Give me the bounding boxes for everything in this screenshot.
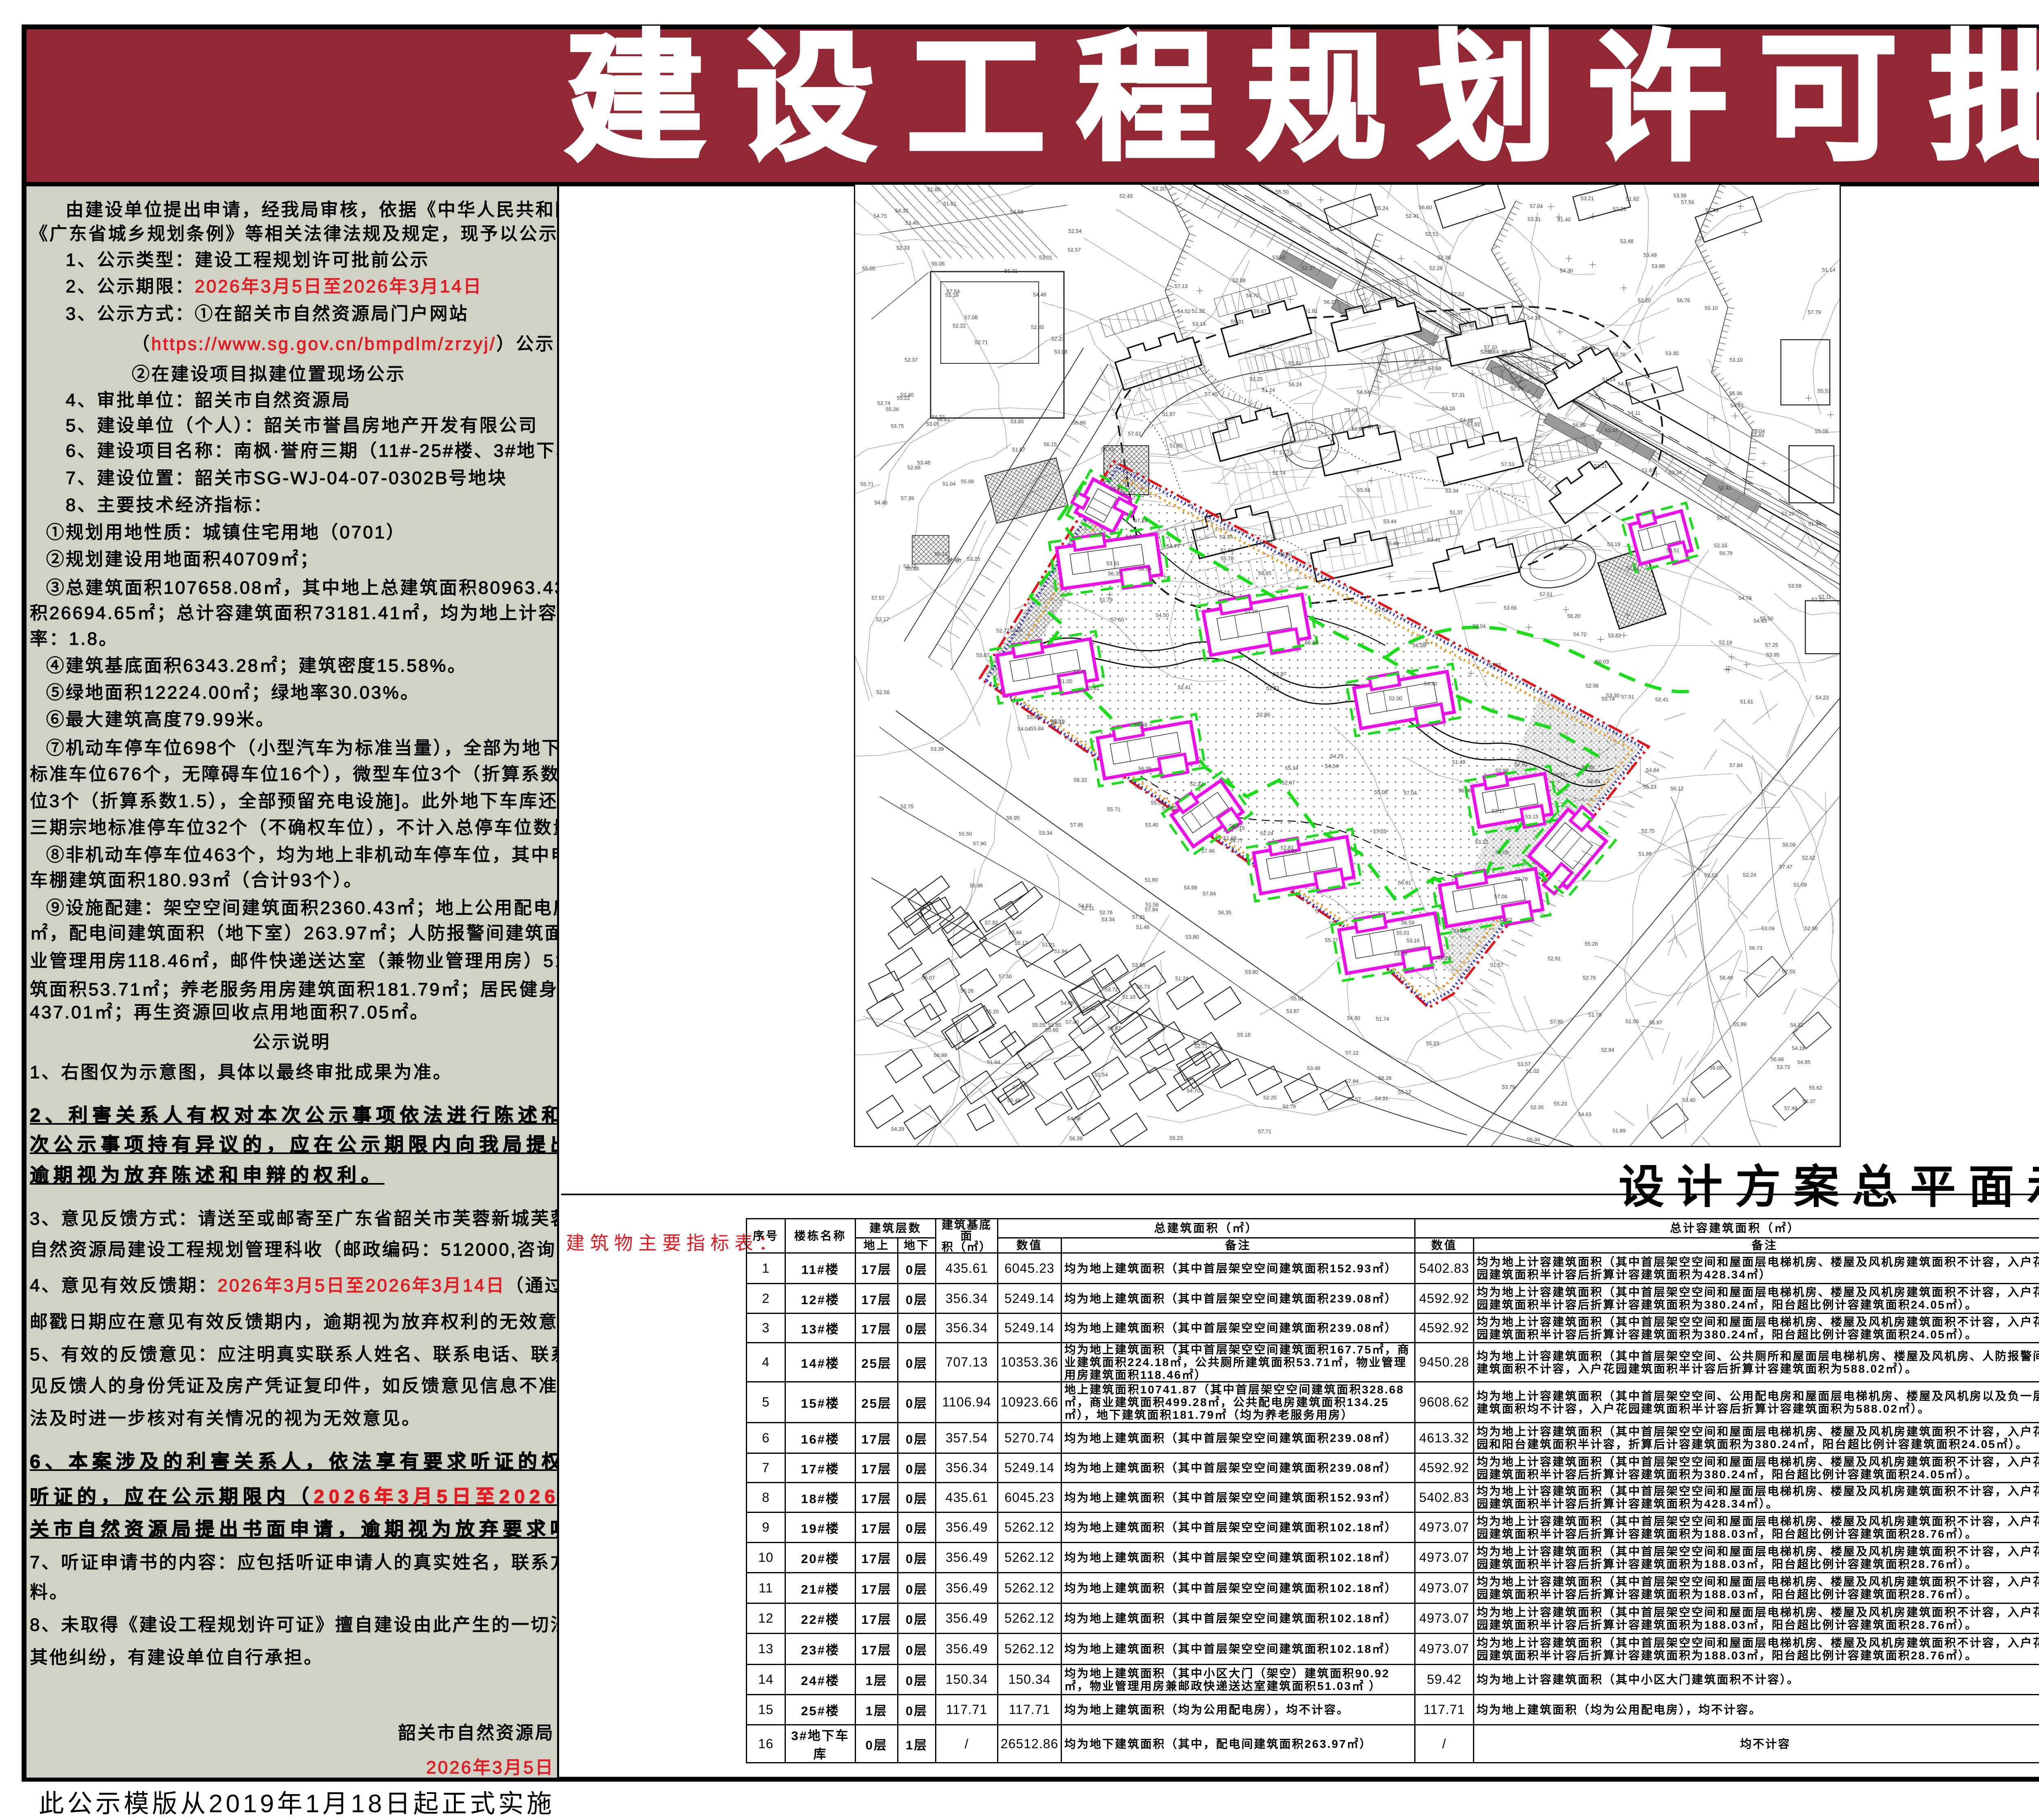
- svg-text:57.90: 57.90: [973, 840, 986, 847]
- svg-text:55.01: 55.01: [1396, 930, 1410, 936]
- svg-text:53.79: 53.79: [1502, 1084, 1515, 1090]
- svg-text:57.04: 57.04: [1530, 203, 1543, 209]
- svg-text:51.10: 51.10: [1122, 994, 1136, 1000]
- svg-text:55.50: 55.50: [1760, 615, 1774, 621]
- svg-text:54.04: 54.04: [1017, 726, 1031, 732]
- svg-text:54.29: 54.29: [891, 1126, 905, 1132]
- svg-text:55.68: 55.68: [906, 566, 919, 572]
- svg-text:52.41: 52.41: [1406, 213, 1419, 219]
- svg-text:56.16: 56.16: [934, 551, 948, 557]
- svg-text:57.84: 57.84: [1345, 1078, 1359, 1084]
- svg-text:51.05: 51.05: [1059, 678, 1073, 684]
- svg-text:52.88: 52.88: [1232, 277, 1246, 283]
- svg-text:53.15: 53.15: [1525, 814, 1539, 820]
- svg-text:53.86: 53.86: [1581, 765, 1595, 771]
- svg-text:57.39: 57.39: [901, 495, 914, 501]
- svg-text:53.40: 53.40: [905, 220, 919, 226]
- svg-text:53.18: 53.18: [1245, 608, 1258, 615]
- svg-text:52.41: 52.41: [1178, 684, 1191, 690]
- svg-text:53.01: 53.01: [1039, 254, 1053, 261]
- svg-text:53.87: 53.87: [1286, 1008, 1300, 1014]
- svg-text:51.80: 51.80: [1145, 877, 1158, 883]
- svg-text:57.57: 57.57: [871, 595, 885, 601]
- svg-text:57.02: 57.02: [1451, 291, 1464, 297]
- svg-text:55.10: 55.10: [1705, 305, 1718, 311]
- svg-text:57.24: 57.24: [1134, 517, 1148, 524]
- svg-text:57.04: 57.04: [1404, 790, 1417, 796]
- svg-text:52.54: 52.54: [1095, 1072, 1108, 1078]
- svg-text:57.61: 57.61: [1128, 431, 1141, 437]
- svg-text:57.84: 57.84: [1203, 891, 1216, 897]
- svg-text:57.92: 57.92: [1467, 421, 1480, 427]
- svg-text:54.77: 54.77: [1167, 543, 1180, 549]
- svg-text:52.40: 52.40: [900, 392, 914, 398]
- svg-text:54.84: 54.84: [1646, 767, 1659, 773]
- svg-text:56.73: 56.73: [1137, 984, 1150, 990]
- svg-text:51.24: 51.24: [1175, 975, 1189, 982]
- svg-text:56.86: 56.86: [1279, 551, 1292, 557]
- svg-text:55.12: 55.12: [1259, 344, 1273, 350]
- svg-text:52.21: 52.21: [1626, 565, 1640, 571]
- svg-text:53.34: 53.34: [1101, 916, 1115, 922]
- svg-text:53.95: 53.95: [1766, 652, 1780, 658]
- svg-text:56.39: 56.39: [1138, 765, 1152, 772]
- svg-text:53.82: 53.82: [1608, 632, 1621, 639]
- svg-text:53.73: 53.73: [1777, 1064, 1790, 1070]
- svg-text:55.23: 55.23: [1643, 784, 1656, 790]
- svg-text:55.23: 55.23: [1554, 1101, 1567, 1107]
- svg-text:57.49: 57.49: [1784, 1105, 1798, 1111]
- svg-text:56.49: 56.49: [1720, 975, 1733, 981]
- svg-text:54.98: 54.98: [1461, 322, 1475, 328]
- svg-text:51.79: 51.79: [1099, 597, 1113, 603]
- svg-text:55.67: 55.67: [1717, 515, 1730, 521]
- svg-text:55.62: 55.62: [1809, 1085, 1822, 1091]
- svg-text:57.17: 57.17: [1013, 1084, 1026, 1090]
- svg-text:52.91: 52.91: [1587, 778, 1601, 784]
- svg-text:53.14: 53.14: [1192, 321, 1206, 327]
- svg-text:53.80: 53.80: [1185, 934, 1199, 940]
- svg-text:55.50: 55.50: [1276, 189, 1289, 195]
- svg-text:52.45: 52.45: [1031, 324, 1044, 330]
- svg-text:53.85: 53.85: [1011, 418, 1024, 425]
- svg-text:51.88: 51.88: [1639, 851, 1652, 857]
- svg-text:54.58: 54.58: [1010, 209, 1024, 215]
- svg-text:53.40: 53.40: [1682, 1097, 1696, 1103]
- svg-text:53.70: 53.70: [1612, 352, 1626, 358]
- svg-text:55.78: 55.78: [1221, 555, 1234, 562]
- svg-text:56.09: 56.09: [1782, 842, 1796, 848]
- svg-text:55.18: 55.18: [1237, 1032, 1251, 1038]
- svg-text:56.07: 56.07: [922, 975, 935, 981]
- svg-text:57.81: 57.81: [1280, 845, 1294, 851]
- svg-text:53.42: 53.42: [1605, 427, 1618, 433]
- svg-text:57.14: 57.14: [1376, 607, 1389, 613]
- svg-text:55.94: 55.94: [1527, 1137, 1540, 1143]
- svg-text:56.37: 56.37: [1802, 1098, 1816, 1104]
- svg-text:56.99: 56.99: [934, 1052, 947, 1058]
- svg-text:55.77: 55.77: [1325, 937, 1338, 943]
- svg-text:54.38: 54.38: [1527, 315, 1541, 321]
- svg-text:56.35: 56.35: [1108, 571, 1121, 577]
- svg-text:55.05: 55.05: [862, 265, 876, 272]
- svg-text:51.56: 51.56: [1625, 1018, 1639, 1024]
- svg-text:57.13: 57.13: [1174, 283, 1188, 289]
- svg-text:56.24: 56.24: [1289, 381, 1302, 387]
- svg-text:56.65: 56.65: [1258, 570, 1272, 576]
- svg-text:57.12: 57.12: [1345, 1050, 1359, 1056]
- svg-text:53.80: 53.80: [1245, 969, 1258, 975]
- svg-text:57.31: 57.31: [1452, 392, 1465, 398]
- svg-text:54.46: 54.46: [874, 500, 888, 506]
- svg-text:55.05: 55.05: [1032, 1022, 1046, 1028]
- svg-text:51.49: 51.49: [1452, 759, 1466, 765]
- svg-text:52.71: 52.71: [975, 339, 988, 345]
- svg-text:56.79: 56.79: [1719, 550, 1733, 556]
- svg-text:51.11: 51.11: [1594, 463, 1607, 469]
- svg-text:56.58: 56.58: [1134, 722, 1148, 728]
- svg-text:52.71: 52.71: [1194, 1043, 1208, 1049]
- svg-text:54.85: 54.85: [1797, 1059, 1811, 1065]
- svg-text:51.91: 51.91: [1305, 308, 1318, 314]
- svg-text:56.12: 56.12: [1670, 785, 1684, 792]
- svg-text:56.26: 56.26: [1378, 1075, 1392, 1081]
- svg-text:55.36: 55.36: [1729, 390, 1743, 396]
- svg-text:54.72: 54.72: [1246, 292, 1259, 299]
- svg-text:51.79: 51.79: [1588, 1012, 1602, 1018]
- svg-text:53.58: 53.58: [1132, 962, 1146, 968]
- svg-text:51.43: 51.43: [1705, 207, 1719, 213]
- svg-text:53.51: 53.51: [1666, 547, 1680, 553]
- svg-text:52.48: 52.48: [1007, 1097, 1021, 1103]
- svg-text:57.54: 57.54: [947, 288, 960, 294]
- svg-text:56.78: 56.78: [1515, 876, 1528, 882]
- svg-text:51.14: 51.14: [1822, 267, 1836, 273]
- svg-text:53.21: 53.21: [1581, 195, 1594, 201]
- svg-text:56.60: 56.60: [1419, 204, 1432, 210]
- svg-text:56.20: 56.20: [1567, 613, 1581, 619]
- svg-text:52.76: 52.76: [1099, 909, 1113, 916]
- svg-text:54.75: 54.75: [874, 213, 887, 219]
- svg-text:55.56: 55.56: [1357, 487, 1371, 493]
- svg-text:55.49: 55.49: [1027, 714, 1040, 720]
- svg-text:55.01: 55.01: [1345, 407, 1358, 413]
- svg-text:54.70: 54.70: [1187, 1088, 1200, 1094]
- svg-text:52.56: 52.56: [876, 689, 890, 695]
- svg-text:53.40: 53.40: [1145, 822, 1159, 828]
- svg-text:53.98: 53.98: [1652, 263, 1665, 269]
- svg-text:55.08: 55.08: [1374, 789, 1388, 795]
- svg-text:51.57: 51.57: [1490, 962, 1504, 968]
- svg-text:51.94: 51.94: [1054, 948, 1068, 954]
- svg-text:54.67: 54.67: [1730, 402, 1744, 409]
- svg-text:55.81: 55.81: [1288, 360, 1302, 366]
- svg-text:57.62: 57.62: [1499, 917, 1512, 923]
- svg-text:55.96: 55.96: [970, 882, 983, 889]
- svg-text:57.56: 57.56: [1681, 199, 1694, 205]
- svg-text:52.19: 52.19: [1719, 639, 1732, 646]
- svg-text:51.64: 51.64: [987, 1059, 1000, 1065]
- svg-text:54.64: 54.64: [1357, 389, 1370, 395]
- svg-text:56.32: 56.32: [1552, 772, 1566, 778]
- svg-text:57.50: 57.50: [999, 973, 1012, 980]
- svg-text:55.01: 55.01: [1101, 446, 1115, 452]
- svg-text:52.20: 52.20: [1152, 186, 1166, 192]
- svg-text:53.16: 53.16: [1407, 938, 1420, 944]
- svg-text:56.95: 56.95: [1006, 815, 1020, 821]
- svg-text:54.23: 54.23: [1816, 694, 1829, 701]
- svg-text:53.67: 53.67: [976, 652, 990, 658]
- svg-text:56.12: 56.12: [1052, 719, 1065, 725]
- svg-text:52.24: 52.24: [1260, 830, 1274, 836]
- svg-text:52.95: 52.95: [1510, 385, 1524, 391]
- svg-text:51.21: 51.21: [1042, 942, 1055, 948]
- svg-text:57.43: 57.43: [1751, 432, 1764, 438]
- svg-text:53.34: 53.34: [1445, 488, 1459, 494]
- svg-text:55.06: 55.06: [1815, 428, 1829, 434]
- svg-text:52.91: 52.91: [1548, 955, 1561, 962]
- svg-text:53.25: 53.25: [967, 556, 980, 562]
- svg-text:56.32: 56.32: [1074, 777, 1087, 783]
- svg-text:55.57: 55.57: [1348, 1096, 1361, 1102]
- svg-text:55.71: 55.71: [1107, 806, 1121, 812]
- svg-text:53.09: 53.09: [1761, 925, 1775, 931]
- svg-text:54.91: 54.91: [1375, 1095, 1389, 1101]
- svg-text:56.59: 56.59: [1401, 920, 1415, 926]
- svg-text:54.79: 54.79: [1738, 595, 1752, 601]
- svg-text:53.60: 53.60: [1413, 358, 1426, 365]
- svg-text:57.55: 57.55: [1782, 969, 1796, 975]
- svg-text:55.53: 55.53: [1818, 388, 1831, 394]
- svg-text:52.51: 52.51: [1425, 231, 1439, 237]
- svg-text:55.49: 55.49: [1386, 540, 1399, 546]
- svg-text:56.76: 56.76: [1677, 297, 1690, 303]
- svg-text:53.31: 53.31: [1528, 216, 1541, 222]
- svg-text:57.82: 57.82: [985, 920, 998, 926]
- svg-text:56.27: 56.27: [1324, 299, 1337, 305]
- svg-text:51.61: 51.61: [1740, 699, 1754, 705]
- svg-text:52.17: 52.17: [876, 616, 889, 622]
- svg-text:52.43: 52.43: [1119, 193, 1133, 199]
- svg-text:51.32: 51.32: [1192, 308, 1205, 314]
- svg-text:57.13: 57.13: [1216, 589, 1230, 595]
- svg-text:57.71: 57.71: [1258, 1128, 1272, 1134]
- svg-text:52.35: 52.35: [1530, 1104, 1544, 1110]
- svg-text:52.53: 52.53: [1704, 872, 1718, 878]
- svg-text:51.68: 51.68: [1223, 835, 1237, 841]
- svg-text:55.84: 55.84: [1031, 725, 1044, 732]
- svg-text:54.12: 54.12: [1790, 1022, 1804, 1028]
- svg-text:54.04: 54.04: [1325, 763, 1338, 769]
- svg-text:52.47: 52.47: [1282, 780, 1295, 786]
- svg-text:56.35: 56.35: [1218, 909, 1232, 916]
- svg-text:57.68: 57.68: [1428, 365, 1442, 372]
- svg-text:52.00: 52.00: [1389, 695, 1402, 701]
- svg-text:56.96: 56.96: [1771, 1056, 1784, 1062]
- svg-text:55.09: 55.09: [1495, 849, 1509, 856]
- svg-text:52.04: 52.04: [1473, 623, 1486, 629]
- svg-text:51.87: 51.87: [1012, 447, 1026, 453]
- svg-text:52.38: 52.38: [1437, 254, 1451, 261]
- svg-text:53.48: 53.48: [917, 460, 931, 466]
- svg-text:51.74: 51.74: [1376, 1016, 1389, 1022]
- svg-text:52.86: 52.86: [1257, 712, 1270, 718]
- svg-text:57.40: 57.40: [1066, 1019, 1079, 1025]
- svg-text:52.50: 52.50: [1805, 925, 1818, 931]
- svg-text:55.54: 55.54: [1486, 349, 1499, 355]
- svg-text:51.85: 51.85: [1170, 442, 1183, 449]
- svg-text:54.92: 54.92: [1126, 533, 1139, 540]
- svg-text:54.48: 54.48: [1033, 292, 1046, 298]
- svg-text:51.14: 51.14: [1602, 376, 1616, 383]
- svg-text:56.26: 56.26: [960, 988, 974, 994]
- svg-text:53.57: 53.57: [1517, 1061, 1531, 1067]
- svg-text:52.76: 52.76: [1583, 975, 1596, 981]
- svg-text:53.87: 53.87: [1108, 1025, 1121, 1031]
- svg-text:55.81: 55.81: [1086, 685, 1099, 691]
- svg-text:53.10: 53.10: [1729, 357, 1743, 363]
- svg-text:53.30: 53.30: [1665, 350, 1679, 356]
- svg-text:55.17: 55.17: [1015, 940, 1028, 946]
- svg-text:52.33: 52.33: [896, 245, 910, 251]
- svg-text:57.31: 57.31: [1132, 914, 1146, 920]
- svg-text:54.59: 54.59: [1138, 566, 1152, 572]
- svg-text:53.22: 53.22: [1475, 839, 1488, 845]
- svg-text:51.04: 51.04: [942, 481, 956, 487]
- svg-text:56.89: 56.89: [1572, 422, 1586, 428]
- svg-text:53.39: 53.39: [1673, 192, 1687, 199]
- svg-text:57.84: 57.84: [1729, 762, 1743, 768]
- svg-text:52.37: 52.37: [1302, 265, 1315, 271]
- svg-text:56.03: 56.03: [1596, 659, 1609, 665]
- svg-text:53.81: 53.81: [1106, 560, 1120, 566]
- svg-text:55.24: 55.24: [1375, 205, 1389, 211]
- svg-text:57.55: 57.55: [1373, 828, 1387, 834]
- svg-text:55.12: 55.12: [1398, 1089, 1411, 1095]
- svg-text:57.53: 57.53: [1501, 461, 1515, 467]
- svg-text:55.23: 55.23: [1170, 1135, 1183, 1141]
- svg-text:52.77: 52.77: [996, 628, 1010, 634]
- svg-text:53.11: 53.11: [1488, 662, 1502, 668]
- svg-text:51.65: 51.65: [1259, 539, 1273, 545]
- svg-text:52.23: 52.23: [1051, 336, 1065, 342]
- svg-text:57.08: 57.08: [964, 314, 978, 321]
- svg-text:54.11: 54.11: [1628, 410, 1641, 416]
- svg-text:52.25: 52.25: [1249, 376, 1263, 382]
- svg-text:51.62: 51.62: [1626, 196, 1639, 202]
- svg-text:52.75: 52.75: [900, 803, 914, 809]
- svg-text:53.75: 53.75: [891, 423, 904, 429]
- svg-text:57.91: 57.91: [1368, 424, 1382, 430]
- svg-text:54.63: 54.63: [1078, 902, 1092, 909]
- svg-text:52.54: 52.54: [1068, 228, 1082, 234]
- svg-text:56.21: 56.21: [1289, 201, 1303, 208]
- svg-text:51.80: 51.80: [927, 186, 941, 192]
- svg-text:56.49: 56.49: [1582, 345, 1595, 351]
- svg-text:56.05: 56.05: [1709, 1065, 1723, 1071]
- svg-text:57.25: 57.25: [1765, 642, 1778, 648]
- svg-text:52.97: 52.97: [1273, 671, 1287, 677]
- svg-text:54.50: 54.50: [1156, 612, 1169, 618]
- svg-text:54.72: 54.72: [1573, 631, 1587, 637]
- svg-text:57.35: 57.35: [1162, 805, 1175, 811]
- svg-text:55.50: 55.50: [959, 831, 972, 837]
- svg-text:55.48: 55.48: [1502, 349, 1515, 355]
- svg-text:54.18: 54.18: [1792, 1045, 1805, 1051]
- svg-text:56.06: 56.06: [931, 261, 945, 267]
- svg-text:57.11: 57.11: [1818, 594, 1831, 600]
- svg-text:57.47: 57.47: [1779, 864, 1793, 870]
- svg-text:51.09: 51.09: [1794, 882, 1807, 888]
- svg-text:52.22: 52.22: [953, 323, 966, 329]
- svg-text:55.99: 55.99: [1733, 1021, 1747, 1027]
- svg-text:56.86: 56.86: [1073, 420, 1086, 426]
- svg-text:57.79: 57.79: [1808, 309, 1821, 315]
- svg-text:52.32: 52.32: [1190, 781, 1203, 787]
- svg-text:54.05: 54.05: [1061, 1000, 1074, 1006]
- svg-text:51.71: 51.71: [1074, 669, 1087, 675]
- svg-text:52.75: 52.75: [1641, 828, 1655, 834]
- svg-text:55.23: 55.23: [1426, 1040, 1440, 1046]
- svg-text:57.91: 57.91: [1515, 761, 1528, 767]
- svg-text:53.44: 53.44: [1008, 929, 1022, 935]
- svg-text:53.44: 53.44: [1383, 518, 1397, 524]
- svg-text:54.59: 54.59: [947, 556, 960, 562]
- svg-text:57.92: 57.92: [1553, 352, 1566, 358]
- svg-text:57.95: 57.95: [1070, 822, 1084, 828]
- svg-text:53.05: 53.05: [926, 421, 940, 427]
- svg-text:56.87: 56.87: [1229, 823, 1243, 829]
- svg-text:52.98: 52.98: [1495, 767, 1509, 774]
- svg-text:54.52: 54.52: [1177, 308, 1191, 314]
- svg-text:51.37: 51.37: [1450, 509, 1463, 515]
- svg-text:55.06: 55.06: [961, 478, 974, 484]
- svg-text:51.89: 51.89: [1612, 1128, 1626, 1134]
- svg-text:54.75: 54.75: [1330, 753, 1344, 759]
- svg-text:56.73: 56.73: [1749, 945, 1763, 951]
- svg-text:57.94: 57.94: [1145, 907, 1158, 913]
- svg-text:56.31: 56.31: [1004, 268, 1018, 274]
- svg-text:52.29: 52.29: [1429, 265, 1443, 271]
- svg-text:53.34: 53.34: [1669, 469, 1682, 475]
- svg-text:57.45: 57.45: [1205, 391, 1218, 397]
- svg-text:53.78: 53.78: [1394, 951, 1407, 957]
- svg-text:54.99: 54.99: [1184, 885, 1197, 891]
- svg-text:55.34: 55.34: [1285, 765, 1298, 771]
- svg-text:55.74: 55.74: [1601, 696, 1615, 702]
- svg-text:51.24: 51.24: [1262, 387, 1275, 393]
- svg-text:53.98: 53.98: [1054, 349, 1068, 355]
- svg-text:52.84: 52.84: [1601, 1047, 1614, 1053]
- svg-text:56.28: 56.28: [1413, 642, 1426, 648]
- svg-text:53.58: 53.58: [1788, 583, 1802, 589]
- svg-text:52.25: 52.25: [1263, 1095, 1277, 1101]
- svg-text:52.37: 52.37: [905, 357, 918, 363]
- svg-text:54.40: 54.40: [1424, 681, 1437, 687]
- svg-text:53.72: 53.72: [1105, 986, 1118, 993]
- svg-text:53.66: 53.66: [1504, 605, 1517, 611]
- svg-text:53.37: 53.37: [1219, 534, 1233, 540]
- svg-text:52.57: 52.57: [1068, 247, 1081, 253]
- svg-text:52.23: 52.23: [1437, 955, 1451, 961]
- svg-text:53.34: 53.34: [1039, 830, 1053, 836]
- svg-text:51.48: 51.48: [1136, 924, 1150, 930]
- svg-text:55.91: 55.91: [1291, 995, 1304, 1002]
- svg-text:56.91: 56.91: [1398, 880, 1411, 886]
- svg-text:53.48: 53.48: [1272, 254, 1286, 261]
- svg-text:56.36: 56.36: [1458, 787, 1472, 794]
- svg-text:56.80: 56.80: [1305, 639, 1318, 646]
